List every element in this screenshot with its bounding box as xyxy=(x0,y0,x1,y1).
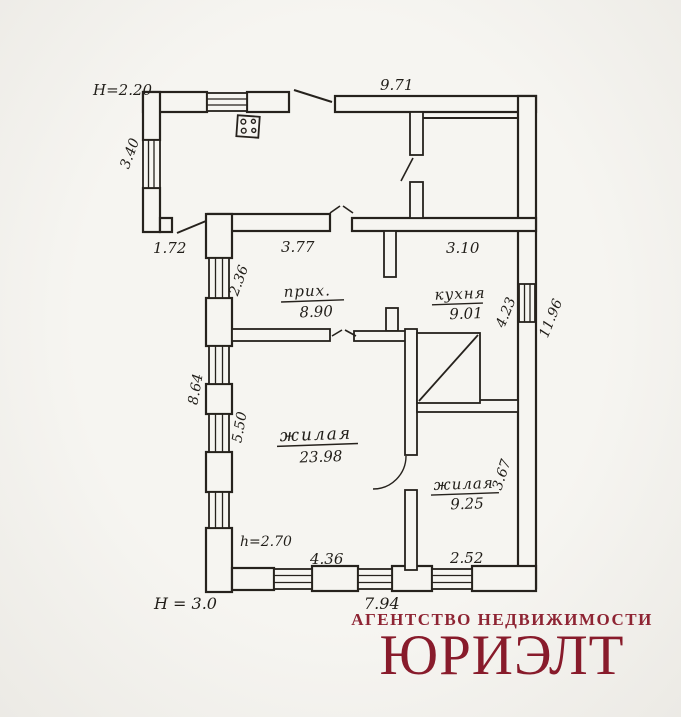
wall-pier xyxy=(206,384,232,414)
wall-pier xyxy=(232,568,274,590)
dim-living-left: 5.50 xyxy=(229,410,250,444)
window-icon xyxy=(519,284,535,322)
agency-logo: АГЕНТСТВО НЕДВИЖИМОСТИ ЮРИЭЛТ xyxy=(330,610,674,684)
door-leaf xyxy=(294,90,332,102)
window-icon xyxy=(432,569,472,589)
room-label-hallway: прих. 8.90 xyxy=(280,281,344,322)
room-label-living-small: жилая 9.25 xyxy=(430,474,499,514)
wall-pier xyxy=(206,214,232,258)
wall-pier xyxy=(312,566,358,591)
dim-building-height: Н = 3.0 xyxy=(153,594,217,613)
partition-stub xyxy=(410,112,423,155)
partition-hall-bottom xyxy=(232,329,330,341)
dim-kitchen-top: 3.10 xyxy=(446,239,480,257)
wall-right xyxy=(518,96,536,588)
room-area: 8.90 xyxy=(299,302,333,321)
door-leaf xyxy=(401,158,413,181)
wall-corner xyxy=(472,566,536,591)
wall-corner xyxy=(206,528,232,592)
partition-stub xyxy=(384,231,396,277)
room-area: 23.98 xyxy=(298,447,343,467)
partition-vertical xyxy=(405,329,417,455)
dim-top-width: 9.71 xyxy=(380,76,413,94)
door-leaf xyxy=(177,221,206,233)
wall-pier xyxy=(247,92,289,112)
door-swing-arc xyxy=(373,456,406,489)
wall-section-bottom xyxy=(352,218,536,231)
partition-vertical xyxy=(405,490,417,570)
dim-kitchen-right: 4.23 xyxy=(493,295,520,331)
wall-top xyxy=(335,96,536,112)
dim-hallway-left: 2.36 xyxy=(226,263,252,299)
dim-right-outer: 11.96 xyxy=(536,297,566,340)
window-icon xyxy=(274,569,312,589)
dim-interior-height: h=2.70 xyxy=(240,534,292,550)
room-label-kitchen: кухня 9.01 xyxy=(431,284,486,324)
wall-step xyxy=(160,218,172,232)
wall-pier xyxy=(143,188,160,232)
room-area: 9.25 xyxy=(450,494,484,513)
partition-stub xyxy=(410,182,423,218)
room-label-living-large: жилая 23.98 xyxy=(276,424,358,468)
stove-icon xyxy=(236,115,259,137)
window-icon xyxy=(207,93,247,111)
window-icon xyxy=(209,492,229,528)
window-icon xyxy=(358,569,392,589)
dim-living-bottom: 4.36 xyxy=(309,550,344,568)
room-name: жилая xyxy=(433,474,494,494)
scanned-floor-plan: Н=2.20 3.40 9.71 1.72 3.77 3.10 2.36 8.6… xyxy=(0,0,681,717)
dim-living-small-bottom: 2.52 xyxy=(449,549,483,567)
dim-veranda-height: Н=2.20 xyxy=(92,81,153,99)
window-icon xyxy=(143,140,160,188)
furnace-icon xyxy=(417,333,480,403)
dim-veranda-door: 1.72 xyxy=(153,239,186,257)
room-area: 9.01 xyxy=(449,304,483,323)
wall-pier xyxy=(206,298,232,346)
door-swing xyxy=(330,206,340,213)
door-swing xyxy=(332,330,342,336)
dim-left-outer: 8.64 xyxy=(185,373,206,406)
window-icon xyxy=(209,414,229,452)
room-name: прих. xyxy=(283,281,331,301)
window-icon xyxy=(209,346,229,384)
door-swing xyxy=(343,206,353,213)
wall-pier xyxy=(143,92,160,140)
dim-hallway-top: 3.77 xyxy=(281,238,315,256)
room-name: кухня xyxy=(434,284,486,304)
dim-veranda-wall: 3.40 xyxy=(117,136,143,171)
room-name: жилая xyxy=(279,424,352,447)
agency-name: ЮРИЭЛТ xyxy=(330,628,674,684)
dimension-labels: Н=2.20 3.40 9.71 1.72 3.77 3.10 2.36 8.6… xyxy=(92,76,566,613)
wall-pier xyxy=(206,452,232,492)
partition-stub xyxy=(386,308,398,331)
